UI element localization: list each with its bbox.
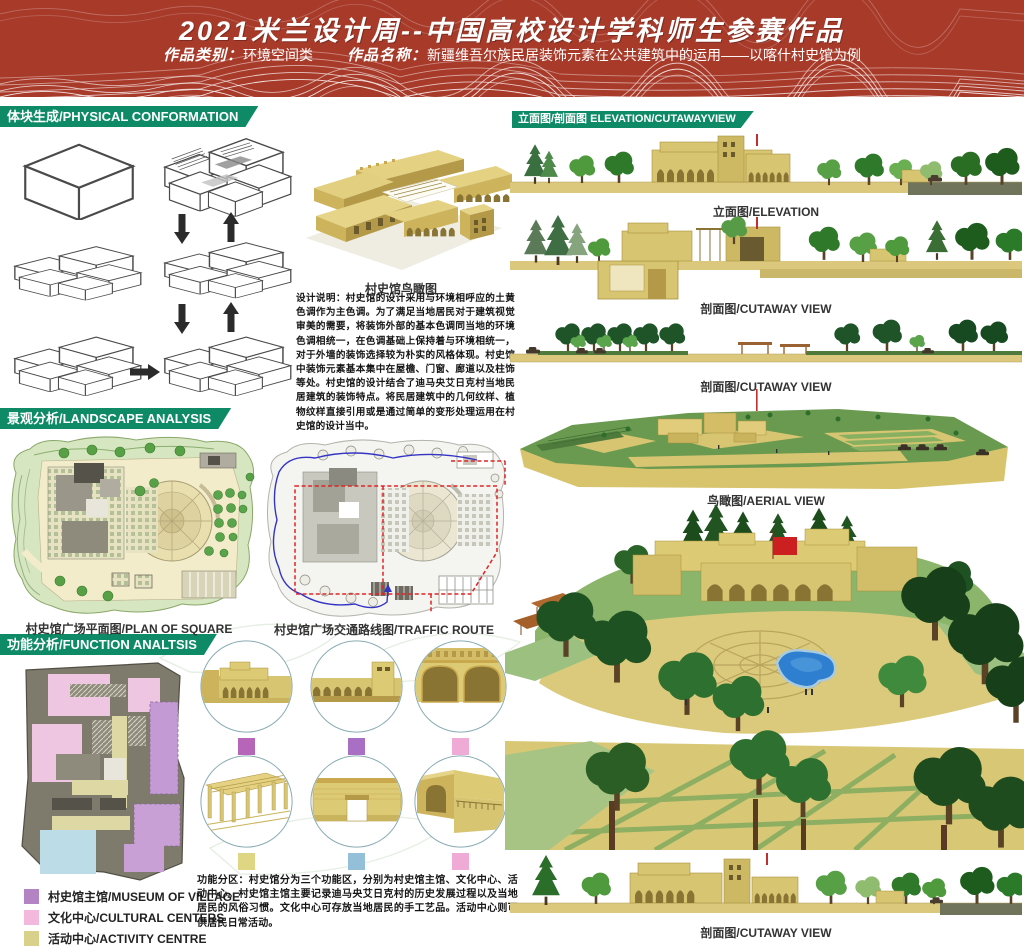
massing-generation-diagram bbox=[2, 130, 310, 406]
traffic-route-drawing bbox=[261, 436, 509, 620]
elevation-drawing bbox=[510, 130, 1022, 202]
legend-swatch-activity bbox=[24, 931, 39, 946]
detail-marker bbox=[238, 853, 255, 870]
legend-swatch-cultural bbox=[24, 910, 39, 925]
arrow-down-icon bbox=[174, 304, 190, 334]
work-name-value: 新疆维吾尔族民居装饰元素在公共建筑中的运用——以喀什村史馆为例 bbox=[427, 47, 861, 63]
function-description: 功能分区：村史馆分为三个功能区，分别为村史馆主馆、文化中心、活动中心。村史馆主馆… bbox=[197, 874, 518, 931]
cutaway-drawing-1 bbox=[510, 215, 1022, 301]
detail-circle-colonnade bbox=[310, 640, 403, 733]
work-name-label: 作品名称： bbox=[347, 47, 427, 64]
detail-marker bbox=[452, 853, 469, 870]
detail-marker bbox=[238, 738, 255, 755]
plan-of-square-drawing bbox=[4, 433, 256, 619]
arrow-up-icon bbox=[223, 302, 239, 332]
detail-marker bbox=[348, 853, 365, 870]
legend-label-activity: 活动中心/ACTIVITY CENTRE bbox=[48, 930, 206, 947]
detail-marker bbox=[452, 738, 469, 755]
category-label: 作品类别： bbox=[163, 47, 243, 64]
function-zoning-plan bbox=[8, 658, 202, 886]
detail-circle-arch-closeup bbox=[414, 640, 507, 733]
section-landscape-analysis: 景观分析/LANDSCAPE ANALYSIS bbox=[0, 408, 231, 429]
poster-subtitle: 作品类别：环境空间类作品名称：新疆维吾尔族民居装饰元素在公共建筑中的运用——以喀… bbox=[0, 44, 1024, 65]
cutaway-drawing-3 bbox=[510, 851, 1022, 923]
design-description: 设计说明：村史馆的设计采用与环境相呼应的土黄色调作为主色调。为了满足当地居民对于… bbox=[296, 292, 515, 434]
detail-circle-pergola bbox=[200, 755, 293, 848]
section-elevation-cutaway: 立面图/剖面图 ELEVATION/CUTAWAYVIEW bbox=[512, 111, 754, 128]
category-value: 环境空间类 bbox=[243, 47, 313, 63]
arrow-down-icon bbox=[174, 214, 190, 244]
detail-circle-gateway bbox=[310, 755, 403, 848]
final-massing bbox=[165, 139, 291, 217]
poster-title: 2021米兰设计周--中国高校设计学科师生参赛作品 bbox=[0, 9, 1024, 48]
aerial-model-render bbox=[508, 389, 1022, 491]
plaza-perspective-render bbox=[505, 503, 1024, 850]
cutaway-drawing-2 bbox=[510, 312, 1022, 374]
legend-swatch-museum bbox=[24, 889, 39, 904]
poster-header: 2021米兰设计周--中国高校设计学科师生参赛作品 作品类别：环境空间类作品名称… bbox=[0, 0, 1024, 97]
detail-circle-courtyard bbox=[414, 755, 507, 848]
competition-poster: { "header": { "title": "2021米兰设计周--中国高校设… bbox=[0, 0, 1024, 946]
caption-traffic-route: 村史馆广场交通路线图/TRAFFIC ROUTE bbox=[250, 621, 518, 638]
detail-marker bbox=[348, 738, 365, 755]
red-flag bbox=[773, 537, 797, 555]
caption-plan-of-square: 村史馆广场平面图/PLAN OF SQUARE bbox=[0, 620, 258, 637]
section-physical-conformation: 体块生成/PHYSICAL CONFORMATION bbox=[0, 106, 258, 127]
legend-item-activity: 活动中心/ACTIVITY CENTRE bbox=[24, 930, 240, 947]
museum-birdseye-render bbox=[286, 142, 516, 278]
section-function-analysis: 功能分析/FUNCTION ANALTSIS bbox=[0, 634, 217, 655]
caption-cutaway-3: 剖面图/CUTAWAY VIEW bbox=[510, 924, 1022, 941]
detail-circle-arcade bbox=[200, 640, 293, 733]
